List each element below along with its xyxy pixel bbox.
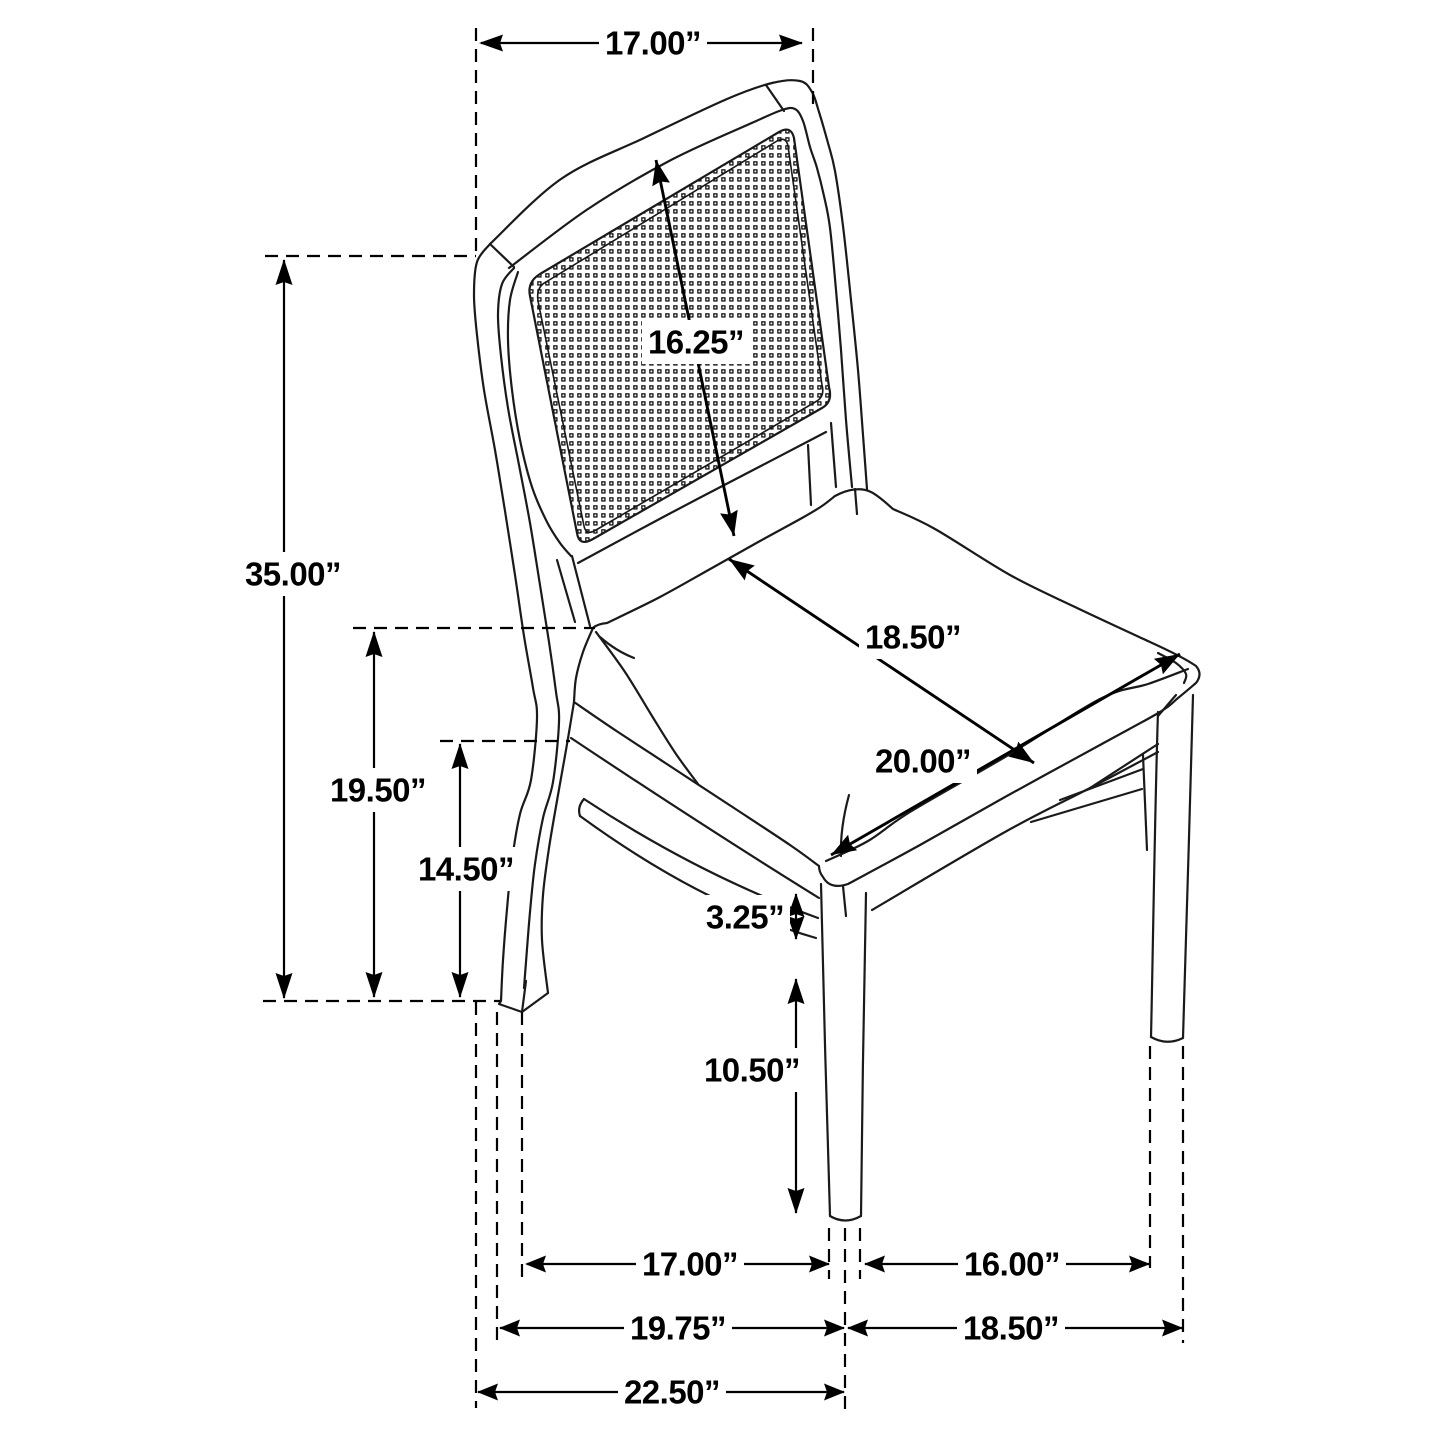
svg-text:10.50”: 10.50” <box>704 1052 800 1089</box>
svg-text:19.50”: 19.50” <box>330 772 426 809</box>
svg-text:17.00”: 17.00” <box>605 25 701 62</box>
svg-text:14.50”: 14.50” <box>418 851 514 888</box>
svg-text:35.00”: 35.00” <box>245 556 341 593</box>
svg-text:18.50”: 18.50” <box>865 619 961 656</box>
svg-text:3.25”: 3.25” <box>706 899 784 936</box>
svg-text:20.00”: 20.00” <box>875 743 971 780</box>
svg-text:22.50”: 22.50” <box>624 1374 720 1411</box>
svg-text:16.00”: 16.00” <box>964 1246 1060 1283</box>
svg-text:16.25”: 16.25” <box>648 324 744 361</box>
svg-text:19.75”: 19.75” <box>630 1310 726 1347</box>
svg-text:18.50”: 18.50” <box>963 1310 1059 1347</box>
svg-text:17.00”: 17.00” <box>642 1246 738 1283</box>
